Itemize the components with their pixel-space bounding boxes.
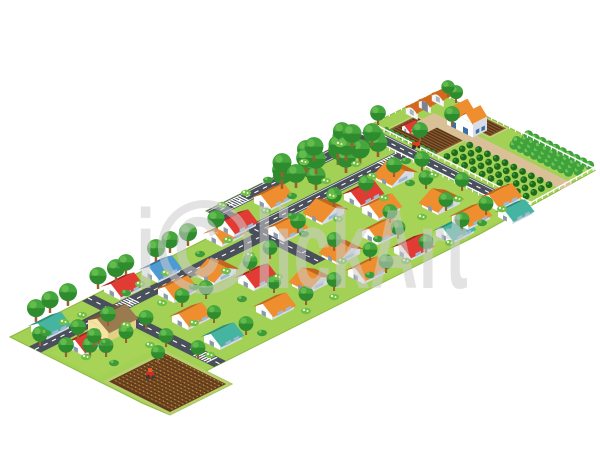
- svg-text:i: i: [136, 187, 155, 312]
- svg-text:C: C: [174, 200, 221, 296]
- svg-text:lickArt: lickArt: [255, 186, 468, 312]
